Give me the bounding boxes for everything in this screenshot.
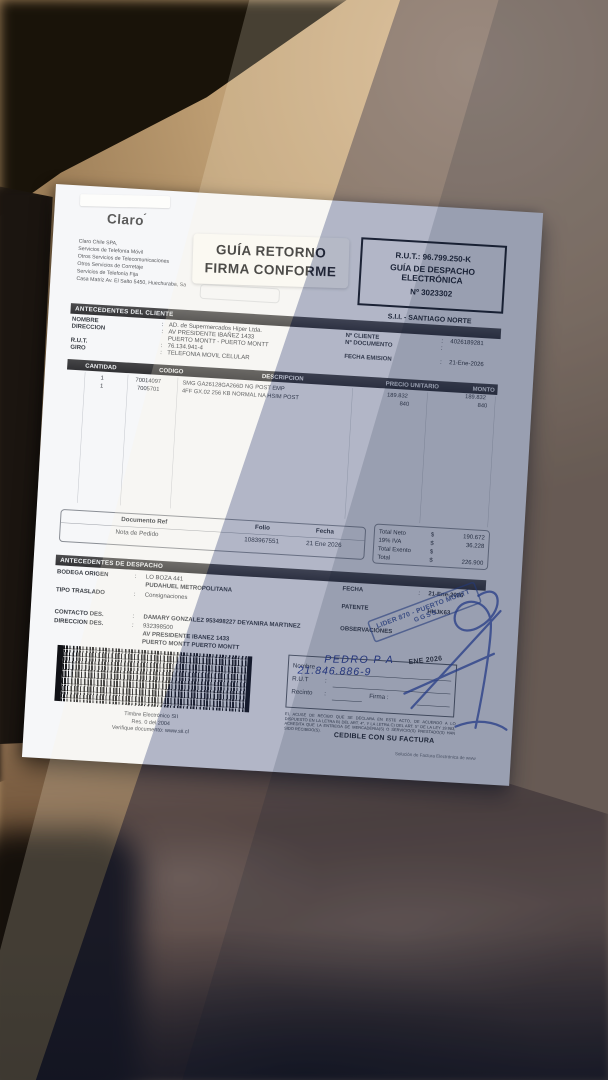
separator: : [161, 328, 163, 335]
tape-sticker [80, 194, 170, 208]
separator: : [440, 358, 442, 365]
field-label: PATENTE [341, 603, 368, 612]
item-cantidad: 1 [100, 383, 104, 389]
column-header: DESCRIPCION [262, 373, 304, 382]
separator: : [132, 612, 134, 619]
field-label: TIPO TRASLADO [56, 586, 105, 596]
field-label: DIRECCION [71, 322, 105, 331]
field-value: Consignaciones [145, 591, 188, 601]
rut-header-box: R.U.T.: 96.799.250-K GUÍA DE DESPACHOELE… [357, 237, 507, 314]
table-column-line [345, 388, 353, 519]
field-label: CONTACTO DES. [54, 608, 103, 618]
separator: : [134, 590, 136, 597]
separator: : [441, 344, 443, 351]
ref-column-header: Fecha [316, 527, 334, 535]
footer-note: Solución de Factura Electrónica de www [303, 746, 476, 761]
document-type: GUÍA DE DESPACHOELECTRÓNICA [389, 262, 475, 286]
ref-fecha: 21 Ene 2026 [306, 539, 342, 548]
total-value: 226.900 [444, 557, 483, 568]
separator: : [135, 572, 137, 579]
item-cantidad: 1 [100, 375, 104, 381]
return-stamp: GUÍA RETORNO FIRMA CONFORME [192, 233, 349, 288]
column-header: CANTIDAD [85, 362, 117, 371]
write-line [332, 688, 363, 702]
handwritten-rut: 21.846.886-9 [297, 664, 371, 678]
timbre-caption: Timbre Electrónico SII Res. 0 del 2004 V… [53, 706, 249, 739]
handwritten-name: PEDRO P A [324, 654, 394, 666]
separator: : [160, 348, 162, 355]
field-value: TELEFONIA MOVIL CELULAR [167, 349, 250, 361]
table-column-line [420, 392, 428, 523]
column-header: MONTO [472, 385, 495, 393]
bottom-vignette [0, 930, 608, 1080]
table-column-line [487, 396, 495, 527]
totals-box: Total Neto $ 190.672 19% IVA $ 36.228 To… [372, 523, 490, 570]
item-monto: 189.832 [465, 394, 486, 401]
field-label: FECHA [342, 585, 363, 593]
pdf417-barcode [54, 645, 252, 712]
claro-logo: Claro´ [107, 211, 149, 229]
field-label: GIRO [70, 343, 86, 351]
return-stamp-line2: FIRMA CONFORME [204, 260, 336, 280]
item-codigo: 70014097 [135, 377, 161, 385]
faint-stamp-outline [199, 284, 280, 304]
ref-column-header: Folio [255, 523, 270, 531]
item-precio: 189.832 [387, 392, 408, 399]
field-value: 21-Ene-2026 [449, 359, 484, 368]
ref-column-header: Documento Ref [121, 515, 168, 525]
field-label: DIRECCION DES. [54, 617, 104, 627]
ref-doc: Nota de Pedido [115, 528, 158, 538]
field-value: 4026189281 [450, 338, 484, 347]
total-label: Total [377, 553, 429, 565]
field-label: Nº DOCUMENTO [345, 338, 393, 348]
ref-table-header: Documento Ref Folio Fecha [61, 512, 365, 541]
table-column-line [77, 372, 85, 503]
item-precio: 840 [399, 401, 409, 408]
field-label: FECHA EMISION [344, 352, 392, 362]
column-header: CODIGO [159, 366, 184, 374]
field-label: BODEGA ORIGEN [57, 568, 109, 578]
document-number: Nº 3023302 [410, 287, 453, 298]
return-stamp-line1: GUÍA RETORNO [216, 242, 327, 261]
item-codigo: 7005701 [137, 385, 160, 392]
separator: : [132, 621, 134, 628]
table-column-line [170, 378, 178, 509]
photo-of-document: Claro´ Claro Chile SPA, Servicios de Tel… [0, 0, 608, 1080]
item-monto: 840 [477, 402, 487, 409]
claro-logo-accent: ´ [143, 212, 147, 223]
table-column-line [120, 375, 128, 506]
signature-scribble [395, 573, 519, 740]
receipt-label: Recinto [291, 685, 325, 700]
ref-table: Documento Ref Folio Fecha Nota de Pedido… [59, 509, 366, 560]
ref-folio: 1083967551 [244, 536, 279, 545]
document-paper: Claro´ Claro Chile SPA, Servicios de Tel… [22, 184, 543, 786]
currency-sign: $ [429, 556, 444, 565]
column-header: PRECIO UNITARIO [386, 380, 440, 390]
